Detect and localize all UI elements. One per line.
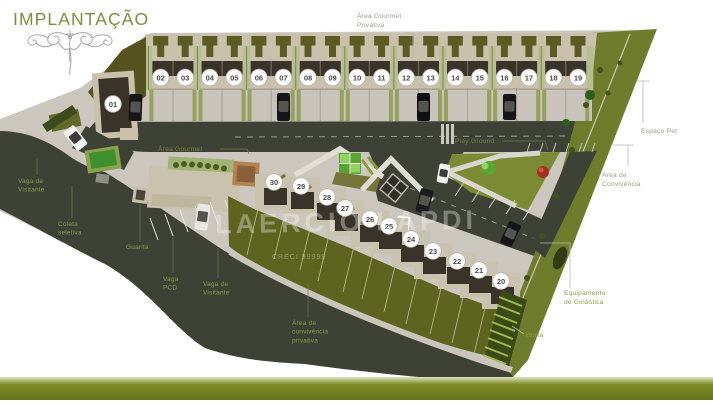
svg-text:Equipamentode Ginástica: Equipamentode Ginástica xyxy=(564,290,606,306)
svg-text:12: 12 xyxy=(402,73,410,82)
svg-text:11: 11 xyxy=(378,73,386,82)
svg-text:Vaga deVisitante: Vaga deVisitante xyxy=(18,178,45,194)
svg-text:CRECI 99999: CRECI 99999 xyxy=(272,254,326,261)
svg-text:15: 15 xyxy=(476,73,484,82)
svg-text:20: 20 xyxy=(497,277,505,286)
svg-text:14: 14 xyxy=(451,73,460,82)
svg-text:09: 09 xyxy=(328,73,336,82)
svg-text:17: 17 xyxy=(525,73,533,82)
svg-text:08: 08 xyxy=(304,73,312,82)
svg-text:05: 05 xyxy=(230,73,238,82)
svg-text:Guarita: Guarita xyxy=(126,244,149,251)
svg-text:Play Ground: Play Ground xyxy=(455,138,494,145)
svg-text:Vaga deVisitante: Vaga deVisitante xyxy=(203,281,230,297)
svg-text:23: 23 xyxy=(429,247,437,256)
svg-text:06: 06 xyxy=(255,73,263,82)
svg-text:Horta: Horta xyxy=(526,332,543,339)
svg-text:03: 03 xyxy=(181,73,189,82)
svg-text:30: 30 xyxy=(270,178,278,187)
svg-text:19: 19 xyxy=(574,73,582,82)
svg-text:24: 24 xyxy=(407,235,416,244)
svg-text:07: 07 xyxy=(279,73,287,82)
svg-text:02: 02 xyxy=(157,73,165,82)
svg-text:22: 22 xyxy=(453,257,461,266)
svg-text:Área Gourmet: Área Gourmet xyxy=(158,144,202,153)
svg-text:21: 21 xyxy=(475,266,483,275)
svg-text:29: 29 xyxy=(297,182,305,191)
svg-text:LAERCIO LAPDI: LAERCIO LAPDI xyxy=(215,205,477,240)
svg-text:Espaço Pet: Espaço Pet xyxy=(641,128,677,135)
svg-text:10: 10 xyxy=(353,73,361,82)
svg-text:16: 16 xyxy=(500,73,508,82)
svg-text:18: 18 xyxy=(549,73,557,82)
svg-text:VagaPCD: VagaPCD xyxy=(163,276,179,292)
svg-text:01: 01 xyxy=(109,100,117,109)
svg-text:13: 13 xyxy=(427,73,435,82)
svg-text:IMPLANTAÇÃO: IMPLANTAÇÃO xyxy=(13,8,149,29)
svg-text:28: 28 xyxy=(323,193,331,202)
svg-text:04: 04 xyxy=(206,73,215,82)
